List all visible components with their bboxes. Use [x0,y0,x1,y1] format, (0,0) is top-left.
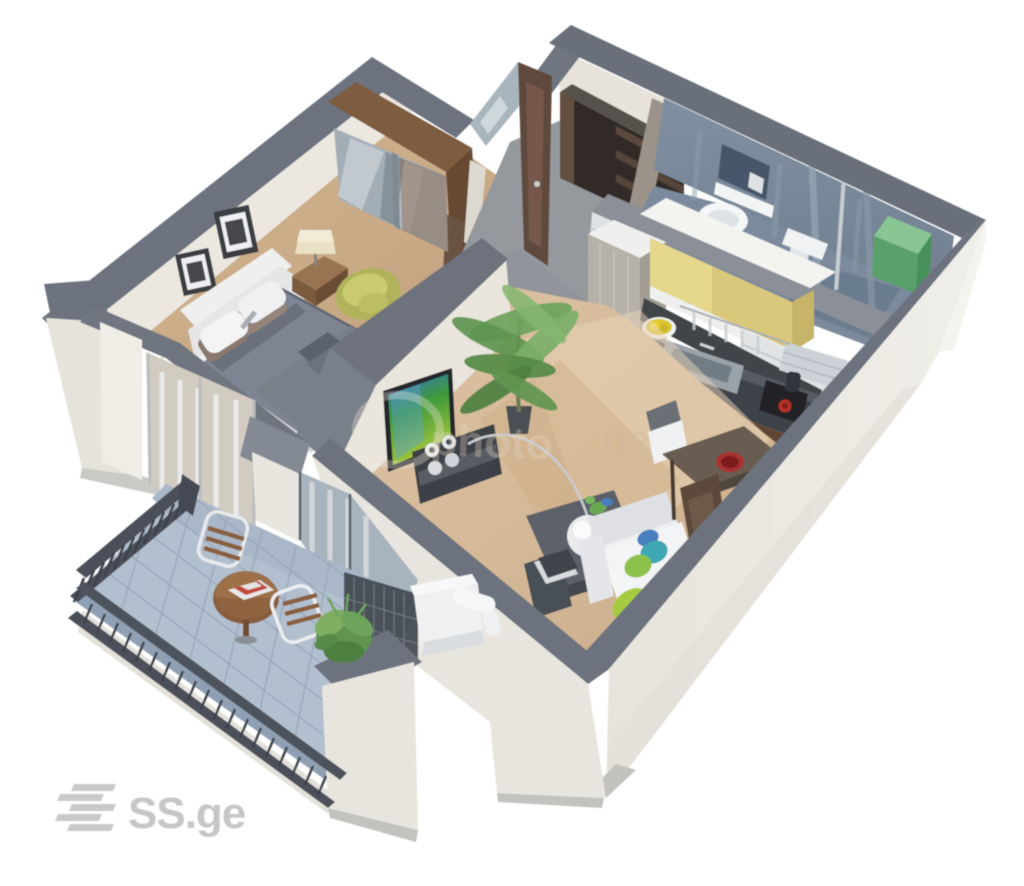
svg-text:SS.ge: SS.ge [128,789,245,838]
svg-text:photo: photo [430,416,554,469]
svg-text:.ge: .ge [590,416,651,463]
